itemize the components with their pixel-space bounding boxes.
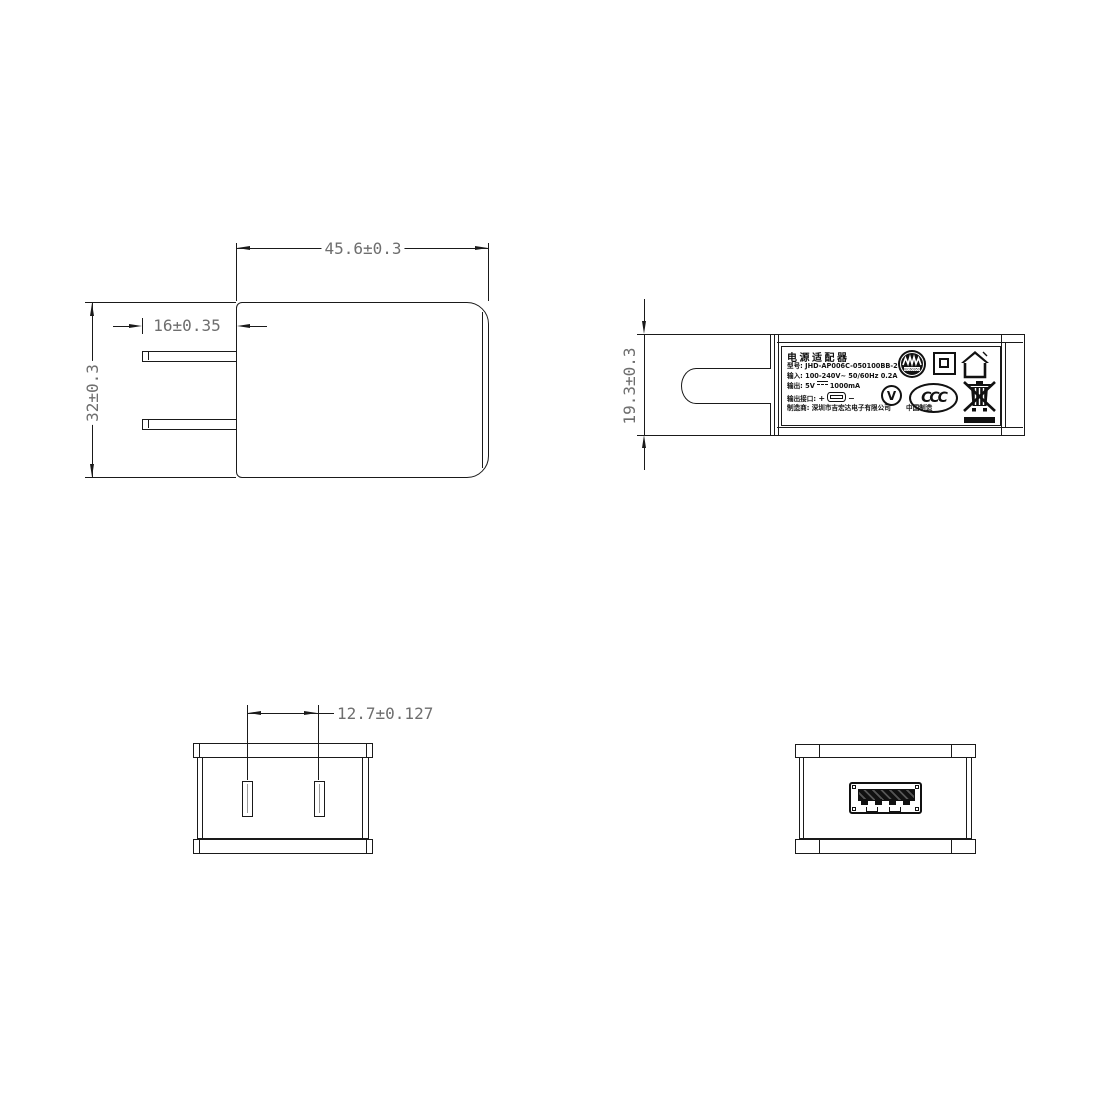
top-body-inner-line-right [362, 758, 363, 838]
dim-prong-arrow-right [237, 324, 250, 328]
usb-band-upper-notch-left [819, 745, 820, 757]
usb-pin-1 [861, 799, 868, 805]
label-input: 输入: 100-240V~ 50/60Hz 0.2A [787, 373, 898, 380]
side-step-line-top [777, 342, 1023, 343]
usb-cap-band-upper [795, 744, 976, 758]
usb-corner-dot-tr [915, 785, 919, 789]
class-ii-icon [933, 352, 956, 375]
label-port-row: 输出接口: +− [787, 391, 855, 403]
front-prong-upper [142, 351, 237, 362]
label-port: 输出接口: [787, 395, 816, 403]
dim-height-arrow-bottom [90, 464, 94, 477]
usb-pin-4 [903, 799, 910, 805]
usb-connector-icon [827, 392, 846, 402]
dim-thickness-text: 19.3±0.3 [621, 344, 639, 427]
dim-height-text: 32±0.3 [84, 361, 102, 425]
greatwall-cert-icon: IEC60950 [897, 349, 927, 379]
usb-contact-right [889, 807, 901, 812]
label-output-prefix: 输出: 5V [787, 382, 815, 390]
dim-height-ext-bottom [85, 477, 236, 478]
label-output: 输出: 5V1000mA [787, 382, 860, 390]
dim-height-arrow-top [90, 303, 94, 316]
dc-symbol-icon [817, 381, 828, 387]
weee-bin-icon [963, 379, 996, 415]
top-cap-band-upper [193, 743, 373, 758]
front-prong-upper-tip-line [148, 352, 149, 360]
dim-width-ext-left [236, 243, 237, 301]
dim-width-text: 45.6±0.3 [321, 240, 404, 258]
dim-width-arrow-right [475, 246, 488, 250]
dim-height-ext-top [85, 302, 236, 303]
usb-corner-dot-bl [852, 807, 856, 811]
top-band-lower-notch-right [366, 840, 367, 853]
top-band-lower-notch-left [199, 840, 200, 853]
front-prong-lower [142, 419, 237, 430]
dim-pin-text: 12.7±0.127 [334, 705, 436, 723]
ccc-mark-icon: CCC [909, 383, 958, 413]
usb-corner-dot-br [915, 807, 919, 811]
dim-thickness-arrow-top [642, 321, 646, 334]
dim-thickness-tail-top [644, 299, 645, 321]
usb-body-inner-line-left [803, 758, 804, 838]
front-body-seam-line [482, 312, 483, 468]
usb-cap-band-lower [795, 839, 976, 854]
dim-pin-arrow-right [304, 711, 317, 715]
side-seam-left-1 [774, 335, 775, 435]
dim-prong-arrow-left [129, 324, 142, 328]
usb-band-upper-notch-right [951, 745, 952, 757]
label-output-current: 1000mA [830, 382, 860, 390]
top-band-upper-notch-right [366, 744, 367, 757]
top-prong-left [242, 781, 253, 817]
label-model: 型号: JHD-AP006C-050100BB-2 [787, 363, 898, 370]
label-manufacturer: 制造商: 深圳市吉宏达电子有限公司 [787, 405, 891, 412]
dim-prong-tail-right [250, 326, 267, 327]
technical-drawing-canvas: 45.6±0.3 32±0.3 16±0.35 电源适配器 型号: JHD-AP… [0, 0, 1100, 1100]
side-seam-right-1 [1001, 335, 1002, 435]
top-body-inner-line-left [202, 758, 203, 838]
top-prong-left-shade [247, 784, 248, 813]
dim-thickness-arrow-bottom [642, 435, 646, 448]
usb-body-inner-line-right [966, 758, 967, 838]
dim-thickness-ext-bottom [637, 435, 770, 436]
dim-pin-ext-right [318, 705, 319, 780]
front-prong-lower-tip-line [148, 420, 149, 428]
side-seam-left-2 [778, 335, 779, 435]
usb-pin-3 [889, 799, 896, 805]
weee-bar-icon [964, 417, 995, 423]
front-body-outline [236, 302, 489, 478]
usb-contact-left [866, 807, 878, 812]
side-prong [681, 368, 771, 404]
top-band-upper-notch-left [199, 744, 200, 757]
dim-width-arrow-left [237, 246, 250, 250]
dim-prong-text: 16±0.35 [150, 317, 223, 335]
dim-prong-ext [142, 318, 143, 334]
efficiency-v-icon: V [881, 385, 902, 406]
dim-thickness-line [644, 334, 645, 435]
dim-thickness-tail-bottom [644, 448, 645, 470]
dim-width-ext-right [488, 243, 489, 301]
usb-band-lower-notch-left [819, 840, 820, 853]
side-seam-right-2 [1005, 342, 1006, 427]
usb-port [849, 782, 922, 814]
dim-pin-arrow-left [248, 711, 261, 715]
top-prong-right-shade [319, 784, 320, 813]
usb-band-lower-notch-right [951, 840, 952, 853]
label-port-plus: + [818, 394, 825, 403]
usb-pin-2 [875, 799, 882, 805]
label-port-minus: − [848, 394, 855, 403]
svg-text:IEC60950: IEC60950 [904, 367, 919, 371]
usb-corner-dot-tl [852, 785, 856, 789]
top-cap-band-lower [193, 839, 373, 854]
dim-pin-ext-left [247, 705, 248, 780]
side-step-line-bottom [777, 427, 1023, 428]
rating-label: 电源适配器 型号: JHD-AP006C-050100BB-2 输入: 100-… [781, 346, 1001, 426]
top-body-outline [197, 757, 369, 839]
dim-thickness-ext-top [637, 334, 770, 335]
top-prong-right [314, 781, 325, 817]
indoor-use-house-icon [960, 350, 990, 379]
